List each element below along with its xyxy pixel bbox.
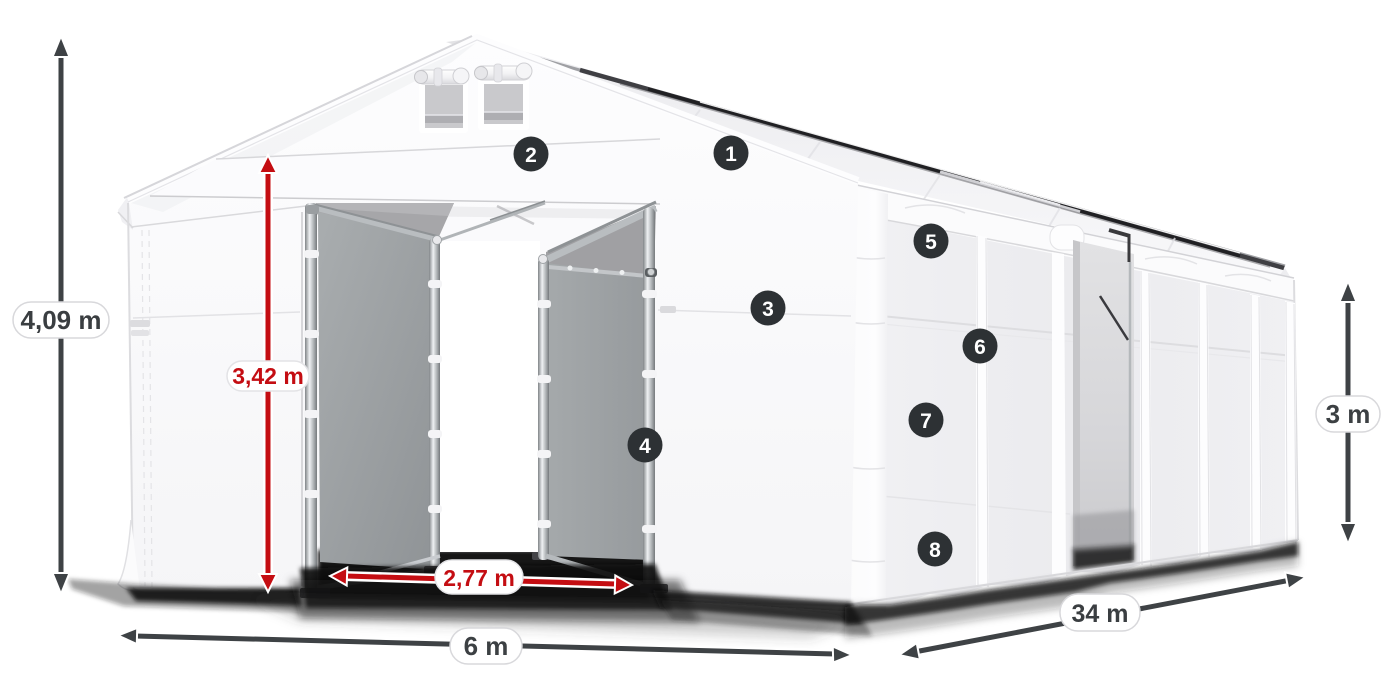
svg-text:8: 8	[929, 539, 941, 562]
svg-text:34 m: 34 m	[1072, 600, 1129, 628]
svg-text:6: 6	[974, 336, 986, 359]
svg-text:3,42 m: 3,42 m	[232, 363, 304, 389]
svg-text:2: 2	[525, 144, 537, 167]
svg-text:5: 5	[925, 231, 937, 254]
svg-text:4,09 m: 4,09 m	[21, 305, 102, 335]
svg-text:7: 7	[920, 410, 932, 433]
svg-text:6 m: 6 m	[464, 631, 509, 661]
svg-text:2,77 m: 2,77 m	[443, 565, 515, 591]
svg-text:1: 1	[725, 143, 737, 166]
svg-text:3 m: 3 m	[1326, 399, 1371, 429]
svg-text:3: 3	[762, 298, 774, 321]
svg-text:4: 4	[639, 435, 651, 458]
